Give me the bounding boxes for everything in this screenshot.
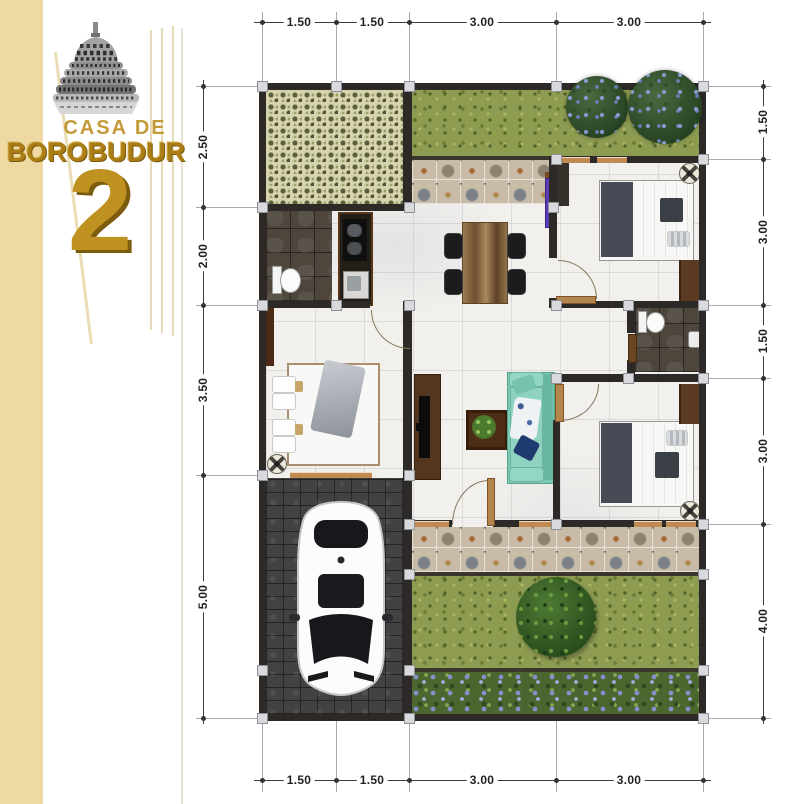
grassblock-paving [266,90,406,204]
ceiling-fan-icon [267,454,287,474]
bed-blanket [655,452,679,478]
dim-tick [334,778,339,783]
floorplan-page: CASA DE BOROBUDUR 2 [0,0,804,804]
bed-runner [601,182,633,257]
dim-bottom-2: 1.50 [357,773,388,787]
column-marker [698,713,709,724]
dim-top-3: 3.00 [467,15,498,29]
dim-tick [761,522,766,527]
dining-chair [507,233,526,259]
column-marker [257,202,268,213]
column-marker [404,665,415,676]
tv-mount [416,423,420,431]
dim-tick [201,473,206,478]
column-marker [257,713,268,724]
dining-table [462,222,508,304]
dim-tick [201,84,206,89]
dim-tick [334,20,339,25]
dim-top-1: 1.50 [284,15,315,29]
sink-basin [347,276,361,291]
column-marker [331,300,342,311]
extension-line [196,718,263,719]
bed-pillow [272,436,296,453]
extension-line [196,86,263,87]
wardrobe-icon [265,308,274,366]
brand-number: 2 [30,152,170,268]
dim-tick [260,20,265,25]
dim-tick [201,205,206,210]
column-marker [698,519,709,530]
dim-bottom-1: 1.50 [284,773,315,787]
front-terrace-tiles [412,159,549,204]
dim-right-3: 1.50 [756,326,770,357]
plant-icon [472,415,496,439]
door-leaf-bedroom2 [555,384,564,422]
column-marker [404,713,415,724]
extension-line [196,305,263,306]
flower-bed [412,672,700,714]
dim-tick [554,778,559,783]
window-bedroom2 [634,521,662,527]
door-leaf-bathroom2 [628,334,637,363]
dining-chair [507,269,526,295]
bed-cushion [295,424,303,435]
dining-chair [444,233,463,259]
dim-tick [761,157,766,162]
dining-chair [444,269,463,295]
dim-tick [201,303,206,308]
column-marker [404,81,415,92]
toilet-bowl [280,268,301,293]
bed-pillow [272,393,296,410]
column-marker [551,154,562,165]
column-marker [551,519,562,530]
bed-runner [601,423,632,503]
tree-icon [516,577,596,657]
tv-screen [419,396,430,458]
dim-tick [407,778,412,783]
dim-tick [761,84,766,89]
logo-decor-line [172,26,174,336]
column-marker [257,470,268,481]
column-marker [623,300,634,311]
curb-garden-flowerbed [406,668,706,672]
window-bedroom1 [597,157,627,163]
bed-pillow [667,231,690,247]
car-icon [288,498,394,698]
bed-cushion [295,381,303,392]
dim-tick [260,778,265,783]
bed-pillow [272,419,296,436]
wardrobe-icon [557,160,569,206]
sofa-backrest [542,374,553,480]
column-marker [551,300,562,311]
dim-top-2: 1.50 [357,15,388,29]
ceiling-fan-icon [679,163,700,184]
sofa-armrest [509,467,544,482]
door-leaf-bedroom1 [556,296,596,304]
column-marker [551,81,562,92]
column-marker [404,300,415,311]
dim-left-2: 2.00 [196,241,210,272]
column-marker [404,202,415,213]
dim-right-2: 3.00 [756,217,770,248]
column-marker [257,81,268,92]
column-marker [698,373,709,384]
dim-tick [201,716,206,721]
wall-front-left [266,204,406,211]
window-bedroom2 [666,521,696,527]
column-marker [548,202,559,213]
dim-tick [761,303,766,308]
borobudur-stupa-icon [48,22,144,118]
wall-master-top [259,301,370,308]
burner [347,242,362,255]
wall-exterior-right [699,83,706,721]
column-marker [698,81,709,92]
bush-icon [566,76,628,138]
brand-panel-stripe [0,0,43,804]
dim-tick [761,716,766,721]
dim-left-1: 2.50 [196,132,210,163]
dim-tick [701,20,706,25]
column-marker [698,300,709,311]
toilet-bowl [646,312,665,333]
bush-icon [628,70,702,144]
dim-tick [554,20,559,25]
wall-carport-lower [403,301,412,721]
dim-right-5: 4.00 [756,606,770,637]
bed-pillow [666,430,688,446]
bed-pillow [272,376,296,393]
column-marker [404,569,415,580]
column-marker [551,373,562,384]
window-living [413,521,449,527]
dim-left-4: 5.00 [196,582,210,613]
wall-bedroom2-left-lower [553,420,560,524]
extension-line [196,207,263,208]
wall-exterior-left [259,83,266,721]
bed-blanket [660,198,683,222]
wall-carport-upper [403,83,412,211]
burner [347,224,362,237]
back-terrace-tiles [412,527,700,572]
dim-tick [407,20,412,25]
dim-tick [761,376,766,381]
dim-tick [701,778,706,783]
dim-right-1: 1.50 [756,107,770,138]
column-marker [331,81,342,92]
extension-line [196,475,263,476]
window-master [290,472,372,478]
wall-exterior-bottom [259,714,706,721]
dim-right-4: 3.00 [756,436,770,467]
dim-top-4: 3.00 [614,15,645,29]
curb-lawn-terrace [403,156,549,160]
wall-bathroom2-left-upper [627,308,635,333]
window-bedroom1 [562,157,590,163]
curb-terrace-garden [406,572,706,576]
column-marker [257,300,268,311]
window-living [519,521,552,527]
door-leaf-entrance [487,478,495,526]
column-marker [257,665,268,676]
column-marker [623,373,634,384]
column-marker [698,665,709,676]
dim-bottom-3: 3.00 [467,773,498,787]
dim-bottom-4: 3.00 [614,773,645,787]
column-marker [404,519,415,530]
column-marker [698,569,709,580]
column-marker [404,470,415,481]
column-marker [698,154,709,165]
dim-left-3: 3.50 [196,375,210,406]
